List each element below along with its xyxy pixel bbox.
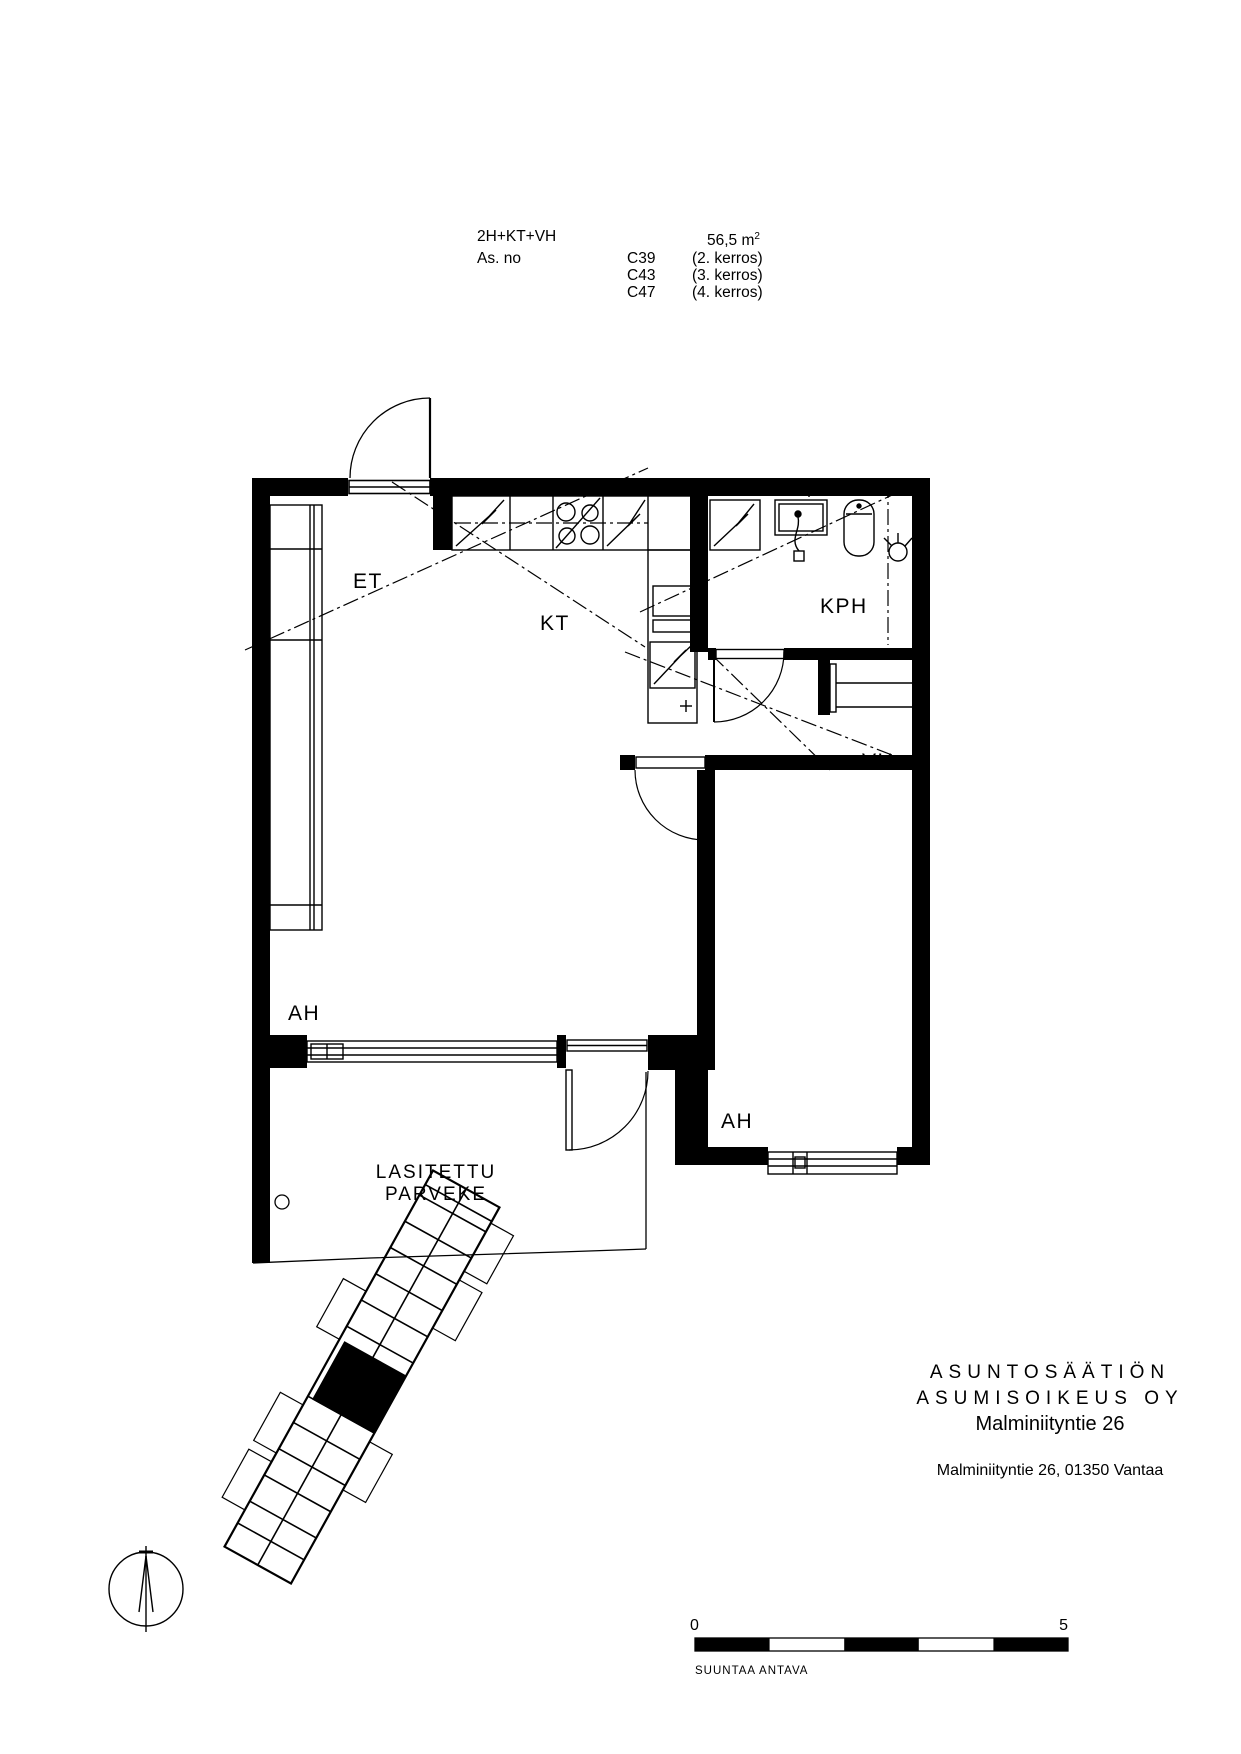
floor-plan-canvas: ET KT KPH VH AH AH LASITETTU PARVEKE (0, 0, 1241, 1754)
scale-start-label: 0 (690, 1617, 699, 1634)
project-address: Malminiityntie 26, 01350 Vantaa (860, 1462, 1240, 1480)
company-name-line2: ASUMISOIKEUS OY (860, 1386, 1240, 1412)
appliance-zigzag-icon (654, 645, 692, 684)
bathroom-door (714, 650, 784, 723)
toilet-icon (844, 500, 874, 556)
scale-end-label: 5 (1059, 1617, 1068, 1634)
scale-bar: 0 5 SUUNTAA ANTAVA (690, 1617, 1068, 1677)
room-label-entry: ET (353, 570, 383, 593)
scale-note: SUUNTAA ANTAVA (695, 1665, 808, 1677)
entrance-door (349, 398, 430, 494)
hall-wardrobe (270, 505, 322, 930)
title-block: ASUNTOSÄÄTIÖN ASUMISOIKEUS OY Malminiity… (860, 1360, 1240, 1480)
living-room-window (307, 1041, 557, 1062)
room-label-living: AH (288, 1002, 320, 1025)
room-label-bathroom: KPH (820, 595, 868, 618)
company-name-line1: ASUNTOSÄÄTIÖN (860, 1360, 1240, 1386)
room-label-kitchen: KT (540, 612, 570, 635)
washing-machine-icon (710, 500, 760, 550)
room-label-bedroom: AH (721, 1110, 753, 1133)
project-street: Malminiityntie 26 (860, 1412, 1240, 1436)
balcony-door (566, 1040, 648, 1150)
bedroom-window (768, 1152, 897, 1174)
balcony-label-line2: PARVEKE (385, 1184, 487, 1205)
room-label-closet: VH (862, 750, 894, 773)
balcony-drain-icon (275, 1195, 289, 1209)
apartment-location-marker (313, 1342, 406, 1433)
bedroom-door (635, 757, 705, 840)
site-plan (202, 1158, 522, 1596)
floorplan-page: 2H+KT+VH As. no 56,5 m2 C39 (2. kerros) … (0, 0, 1241, 1754)
vh-closet (830, 664, 912, 712)
kitchen-tall-unit (648, 550, 697, 723)
north-compass-icon (109, 1546, 183, 1632)
